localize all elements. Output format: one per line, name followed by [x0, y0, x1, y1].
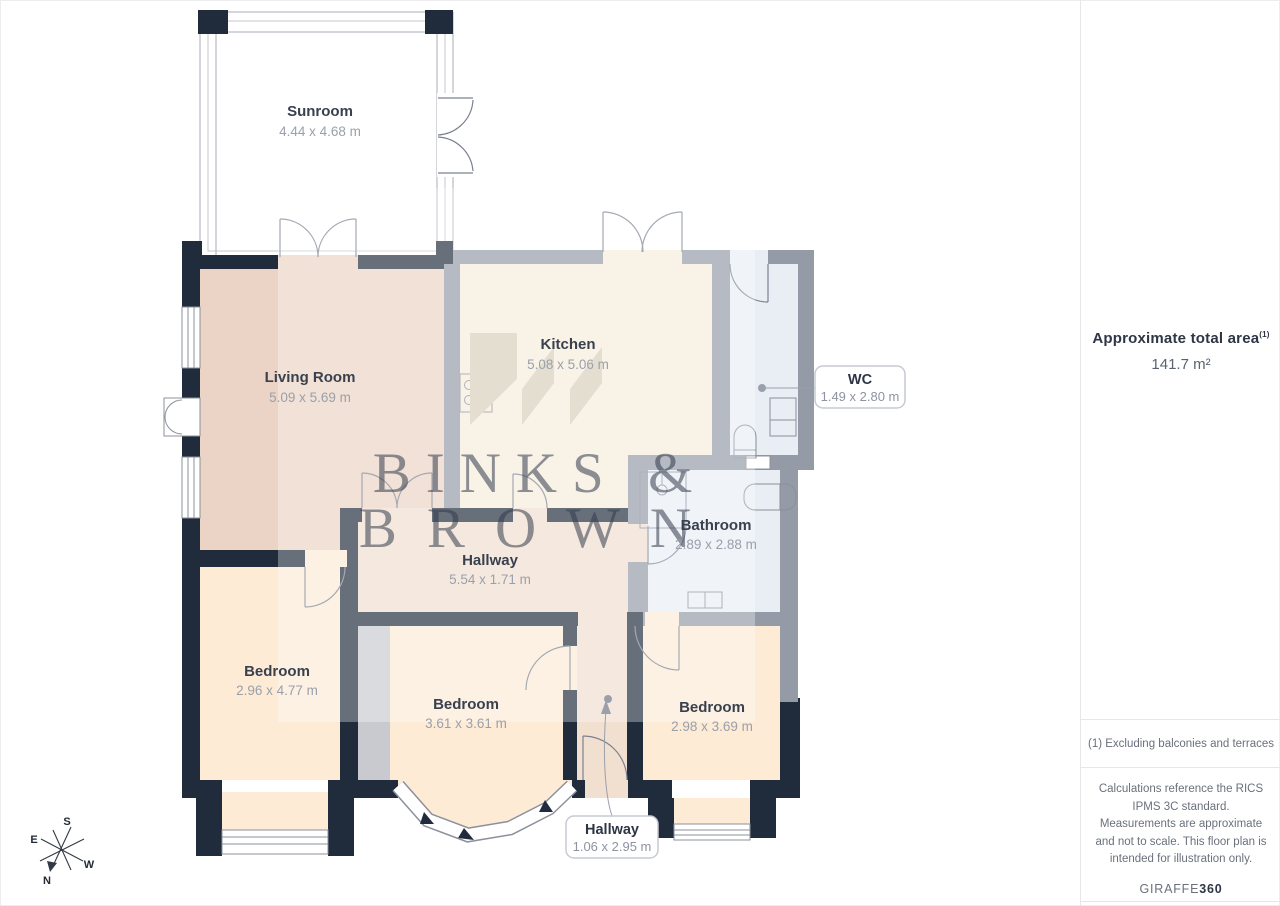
compass-rose: S E W N [30, 816, 94, 887]
total-area-value: 141.7 m² [1081, 356, 1280, 373]
agency-watermark: BINKS & BROWN [359, 442, 721, 560]
brand-name: GIRAFFE [1139, 882, 1199, 896]
callout-wc-dims: 1.49 x 2.80 m [821, 389, 900, 404]
room-dims-living-room: 5.09 x 5.69 m [269, 390, 351, 405]
brand-suffix: 360 [1199, 882, 1222, 896]
disclaimer-text: Calculations reference the RICS IPMS 3C … [1093, 781, 1269, 869]
bedroom-left-bay-window [222, 830, 328, 854]
room-dims-bedroom-middle: 3.61 x 3.61 m [425, 716, 507, 731]
room-label-hallway: Hallway [462, 552, 519, 569]
room-label-bathroom: Bathroom [681, 517, 752, 534]
room-label-sunroom: Sunroom [287, 103, 353, 120]
bedroom-left-bay-floor [222, 792, 328, 832]
floorplan-drawing: BINKS & BROWN Sunroom 4.44 x 4.68 m Livi… [0, 0, 1080, 906]
compass-w: W [84, 859, 95, 871]
room-dims-bedroom-right: 2.98 x 3.69 m [671, 719, 753, 734]
compass-n: N [43, 875, 51, 887]
total-area-title-text: Approximate total area [1092, 330, 1259, 347]
callout-dot [758, 384, 766, 392]
watermark-line1: BINKS & [373, 442, 708, 505]
total-area-superscript: (1) [1259, 330, 1269, 339]
room-dims-kitchen: 5.08 x 5.06 m [527, 357, 609, 372]
room-label-bedroom-middle: Bedroom [433, 696, 499, 713]
watermark-line2: BROWN [359, 497, 721, 560]
callout-wc-label: WC [848, 372, 873, 388]
room-dims-sunroom: 4.44 x 4.68 m [279, 124, 361, 139]
room-label-living-room: Living Room [265, 369, 356, 386]
callout-hallway-dims: 1.06 x 2.95 m [573, 839, 652, 854]
total-area-block: Approximate total area(1) 141.7 m² [1081, 330, 1280, 373]
compass-s: S [63, 816, 70, 828]
info-sidebar: Approximate total area(1) 141.7 m² (1) E… [1080, 0, 1280, 906]
room-label-bedroom-left: Bedroom [244, 663, 310, 680]
total-area-title: Approximate total area(1) [1081, 330, 1280, 347]
brand-logo: GIRAFFE360 [1093, 882, 1269, 896]
room-label-bedroom-right: Bedroom [679, 699, 745, 716]
footnote: (1) Excluding balconies and terraces [1081, 719, 1280, 768]
callout-hallway-label: Hallway [585, 822, 639, 838]
room-dims-bedroom-left: 2.96 x 4.77 m [236, 683, 318, 698]
compass-e: E [30, 834, 37, 846]
room-dims-hallway: 5.54 x 1.71 m [449, 572, 531, 587]
compass-north-arrow [47, 861, 57, 872]
room-label-kitchen: Kitchen [540, 336, 595, 353]
room-dims-bathroom: 2.89 x 2.88 m [675, 537, 757, 552]
floorplan-page: BINKS & BROWN Sunroom 4.44 x 4.68 m Livi… [0, 0, 1280, 906]
callout-dot [604, 695, 612, 703]
wall-recess [164, 398, 200, 436]
disclaimer-block: Calculations reference the RICS IPMS 3C … [1081, 766, 1280, 902]
bedroom-right-bay-window [674, 824, 750, 840]
